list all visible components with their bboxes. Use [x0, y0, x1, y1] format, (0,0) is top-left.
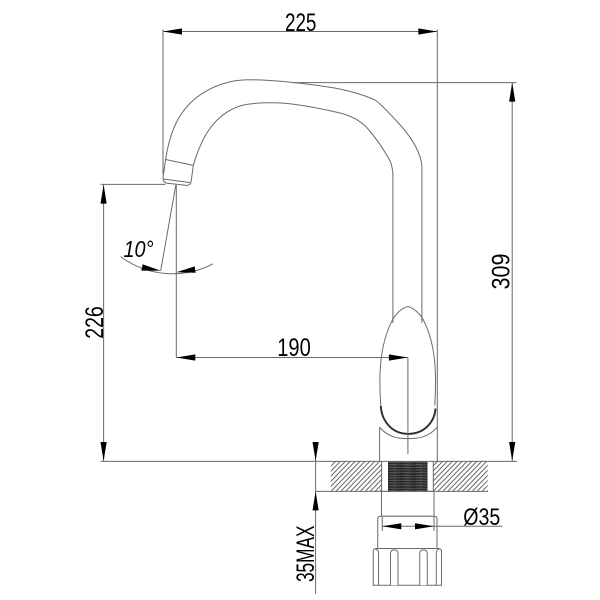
svg-text:226: 226: [81, 306, 109, 339]
svg-text:309: 309: [488, 254, 516, 290]
svg-text:225: 225: [285, 9, 317, 37]
svg-text:190: 190: [277, 334, 311, 362]
svg-text:35MAX: 35MAX: [292, 525, 320, 582]
svg-text:10°: 10°: [124, 236, 154, 262]
svg-text:Ø35: Ø35: [463, 504, 500, 531]
